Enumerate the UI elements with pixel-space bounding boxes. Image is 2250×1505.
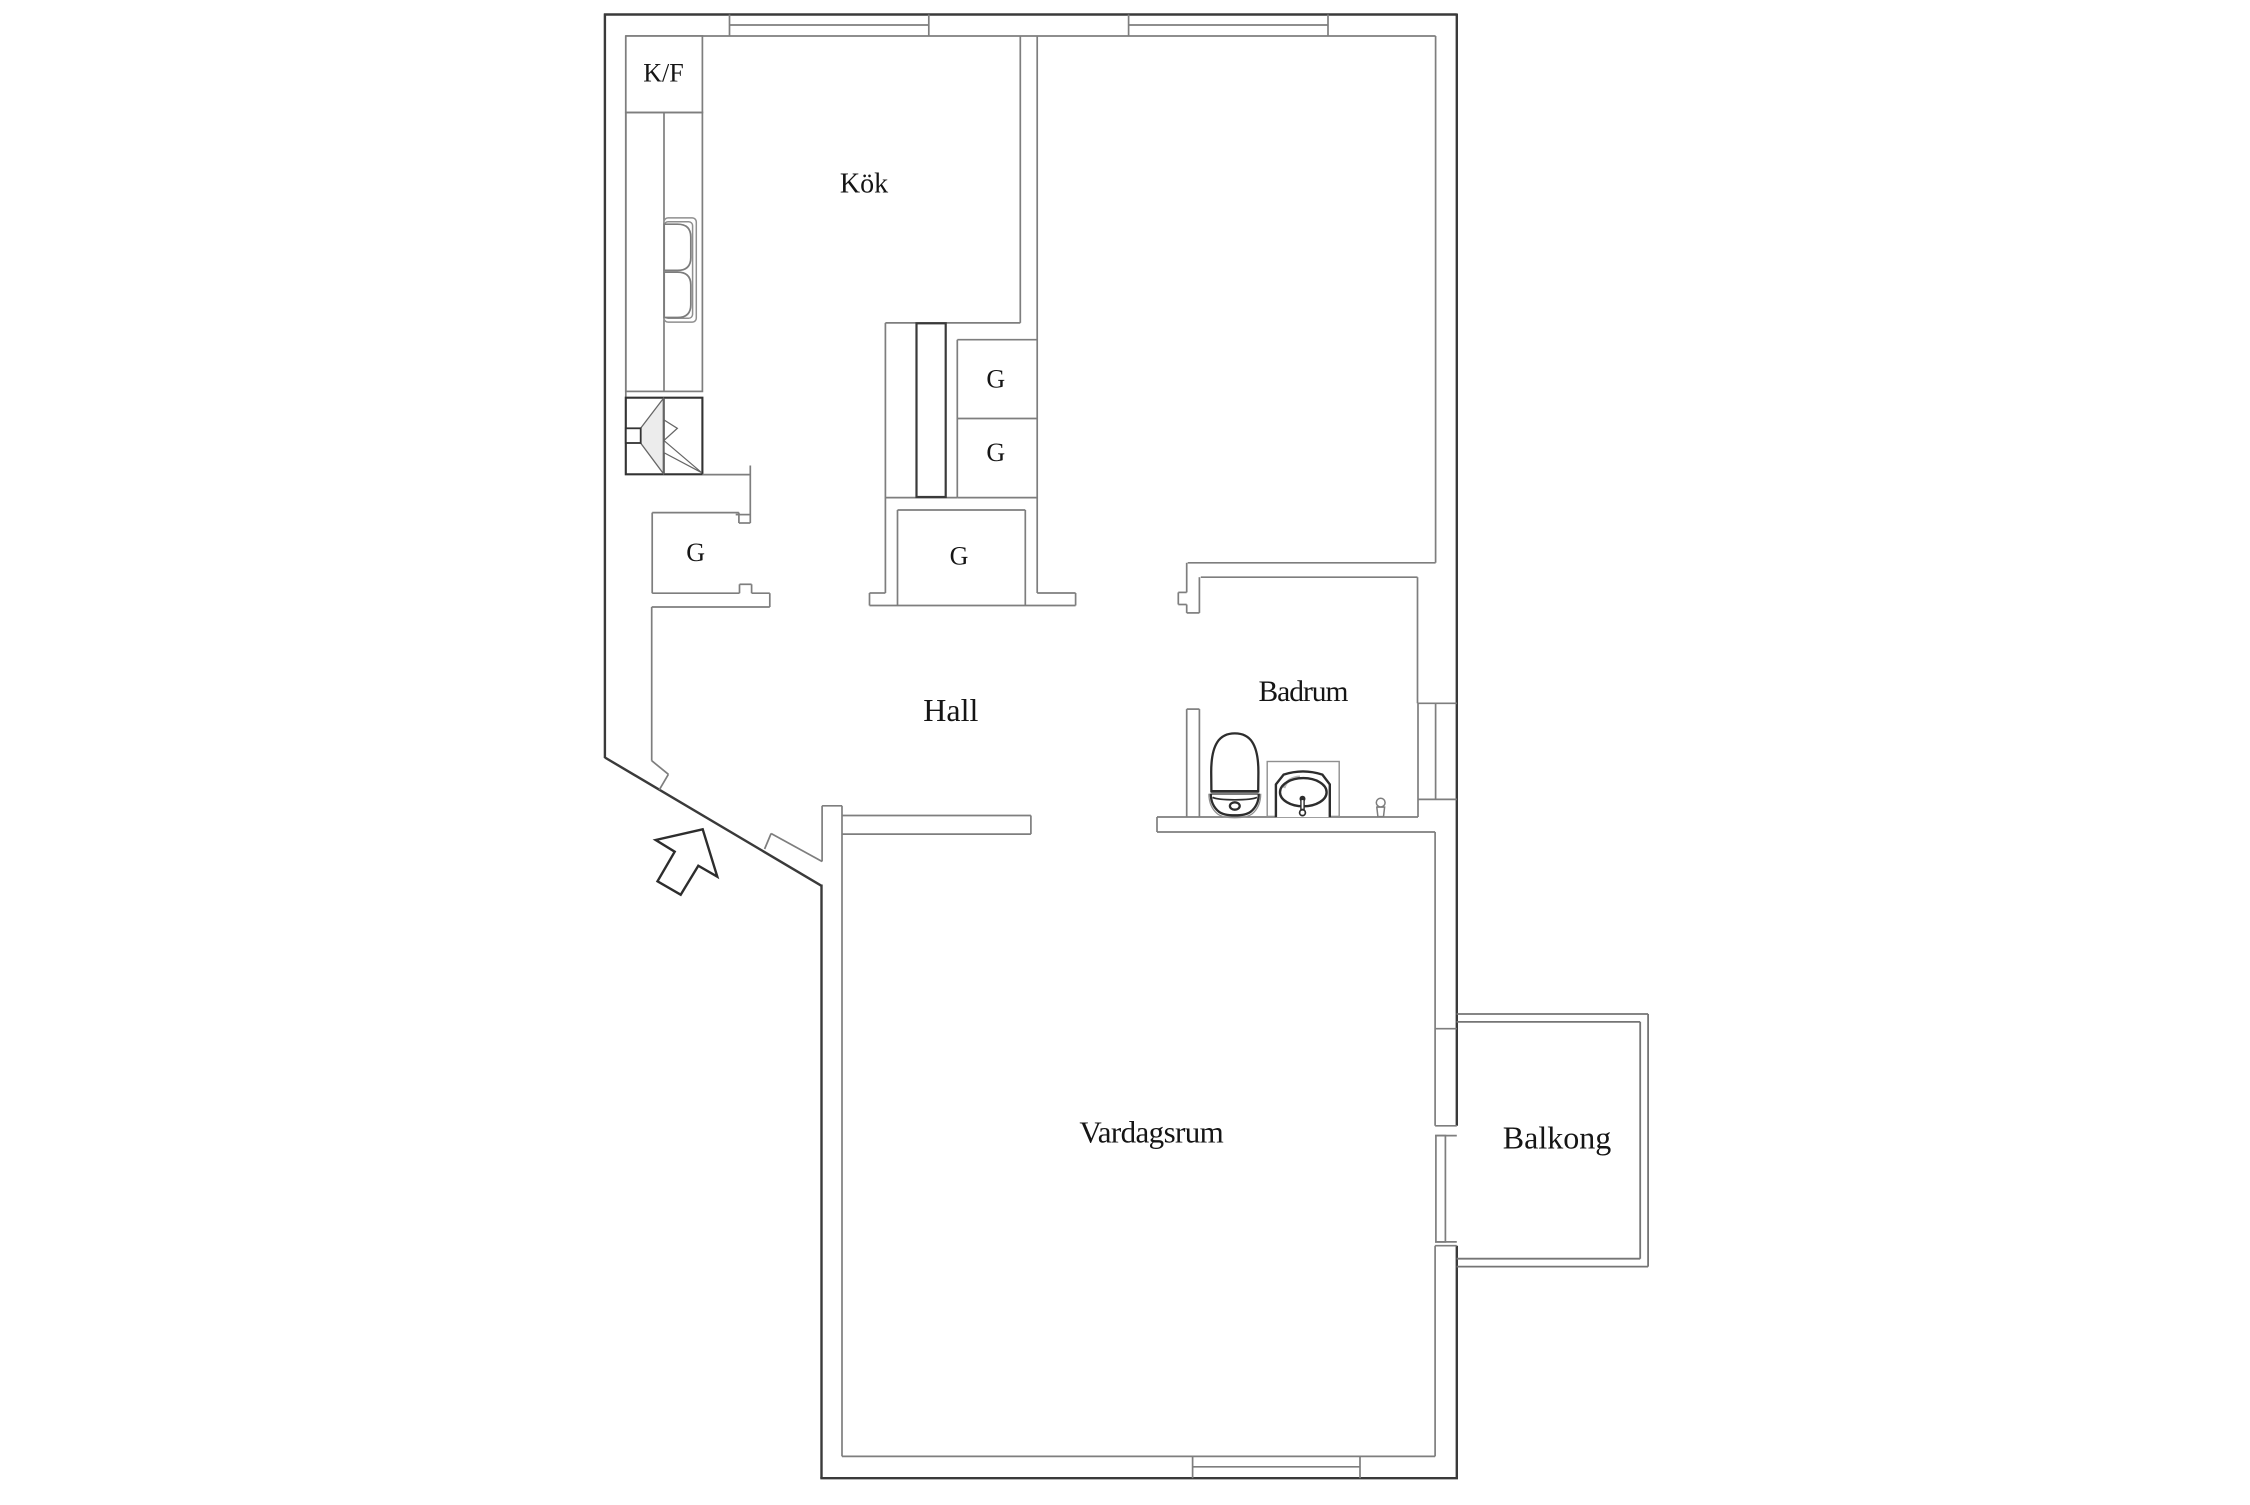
svg-text:G: G	[686, 538, 705, 567]
svg-text:K/F: K/F	[643, 59, 683, 88]
svg-text:G: G	[986, 365, 1005, 394]
svg-text:Hall: Hall	[923, 692, 978, 728]
svg-text:G: G	[950, 542, 969, 571]
svg-text:G: G	[986, 438, 1005, 467]
svg-text:Balkong: Balkong	[1503, 1120, 1611, 1156]
svg-text:Vardagsrum: Vardagsrum	[1079, 1115, 1223, 1150]
svg-text:Badrum: Badrum	[1258, 676, 1348, 708]
svg-text:Kök: Kök	[840, 169, 888, 200]
